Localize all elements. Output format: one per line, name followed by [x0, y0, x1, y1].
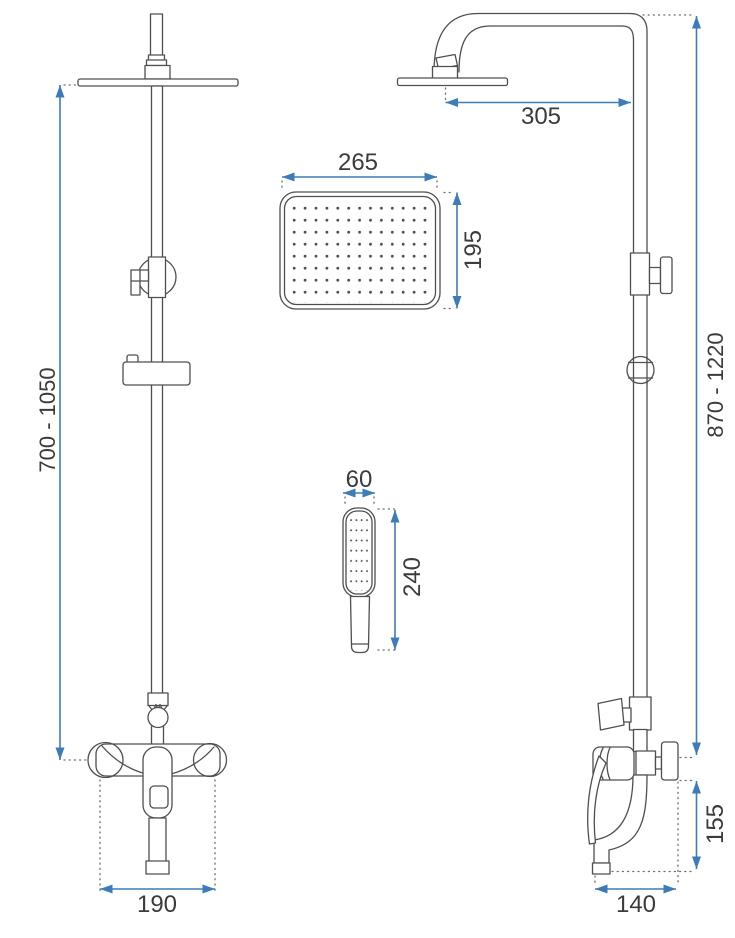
front-lever-button — [150, 786, 168, 808]
dimension-head-width: 265 — [282, 149, 437, 190]
head-nozzle-grid — [291, 204, 432, 303]
dimension-label-head-width: 265 — [338, 149, 378, 176]
side-wall-knob-cap — [661, 257, 673, 294]
dimension-hand-shower-width: 60 — [343, 466, 375, 506]
front-lower-pipe — [152, 726, 164, 746]
front-spout-stem — [149, 818, 166, 862]
shower-set-dimensional-drawing: 700 - 1050 190 265 195 60 240 305 — [0, 0, 735, 938]
head-top-view — [280, 192, 440, 309]
dimension-arm-reach: 305 — [446, 88, 632, 130]
front-diverter-pipe-section — [149, 257, 166, 298]
front-head-mount — [145, 66, 170, 80]
side-mount-cap — [662, 742, 679, 780]
side-lever-blade — [588, 756, 606, 844]
side-spout — [594, 775, 647, 863]
front-hose-collar — [148, 693, 168, 706]
dimension-hand-shower-length: 240 — [378, 509, 426, 650]
side-diverter-block — [630, 697, 652, 730]
front-view — [78, 14, 238, 874]
side-diverter-grip — [598, 699, 624, 731]
dimension-label-side-height: 870 - 1220 — [703, 332, 728, 437]
front-hose-nut — [148, 708, 168, 728]
side-mount-stem — [656, 757, 662, 769]
dimension-label-front-height: 700 - 1050 — [35, 367, 60, 472]
dimension-label-front-base-width: 190 — [137, 891, 177, 918]
dimension-label-spout-height: 155 — [702, 804, 729, 844]
dimension-label-side-base-depth: 140 — [616, 891, 656, 918]
front-slider-holder — [123, 362, 190, 385]
dimension-side-height: 870 - 1220 — [643, 15, 728, 758]
hand-shower-view — [343, 508, 375, 653]
side-wall-mount-square — [636, 751, 656, 775]
hand-shower-nozzles — [349, 517, 371, 591]
front-riser-pipe — [152, 86, 163, 696]
front-spout-cap — [146, 861, 169, 874]
dimension-label-arm-reach: 305 — [521, 103, 561, 130]
front-top-collar — [147, 55, 167, 66]
dimension-label-hand-shower-width: 60 — [346, 466, 373, 493]
side-wall-knob-stem — [650, 268, 661, 284]
side-view — [398, 14, 679, 875]
dimension-label-head-depth: 195 — [460, 230, 487, 270]
side-wall-knob-block — [631, 253, 650, 295]
front-head-disc — [78, 79, 238, 86]
technical-drawing-page: 700 - 1050 190 265 195 60 240 305 — [0, 0, 735, 938]
side-head-disc — [398, 78, 508, 86]
side-head-mount — [433, 67, 458, 79]
side-lower-pipe — [634, 730, 648, 752]
dimension-label-hand-shower-length: 240 — [399, 557, 426, 597]
front-top-pipe — [151, 14, 163, 56]
dimension-front-height: 700 - 1050 — [35, 85, 86, 760]
dimension-head-depth: 195 — [444, 193, 487, 309]
side-slider-ring — [627, 357, 654, 384]
side-spout-cap — [593, 863, 611, 874]
